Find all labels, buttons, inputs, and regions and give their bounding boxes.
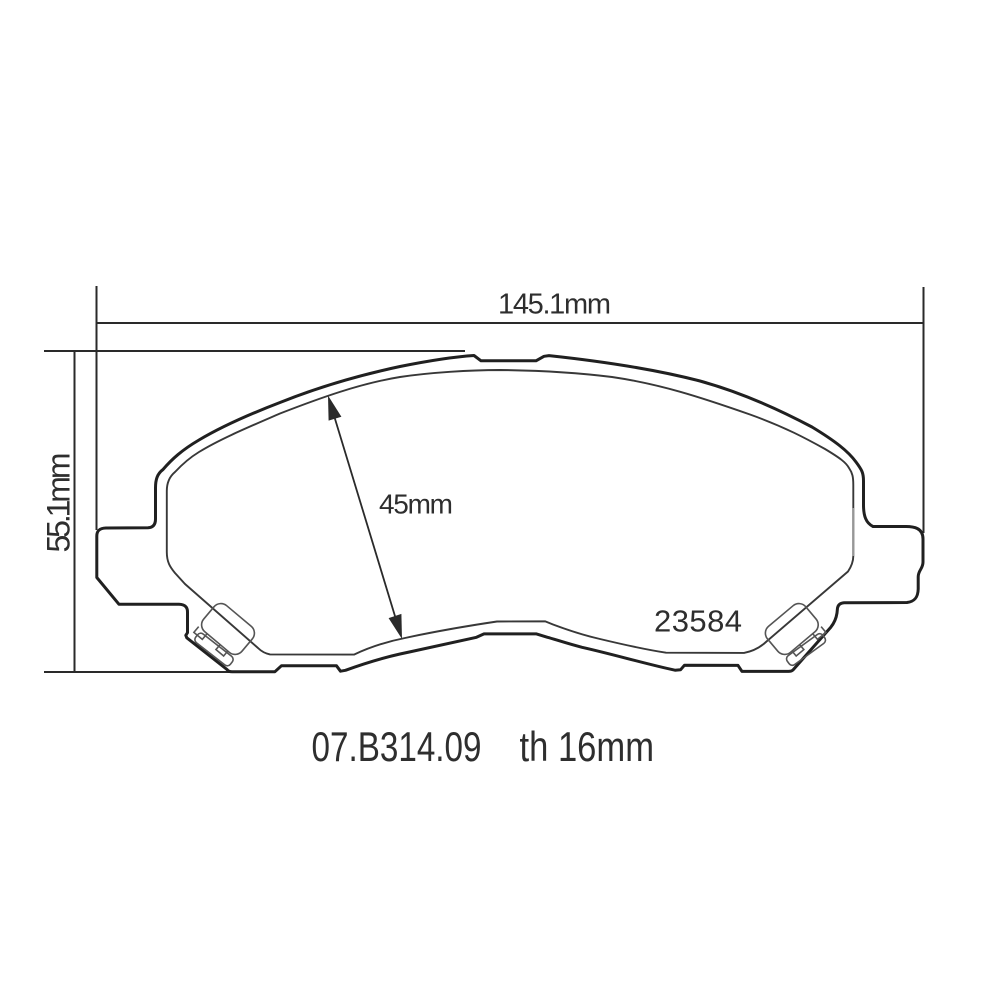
svg-text:th 16mm: th 16mm [520,723,655,770]
svg-text:23584: 23584 [654,604,742,639]
svg-text:145.1mm: 145.1mm [498,289,611,321]
svg-text:07.B314.09: 07.B314.09 [312,723,482,770]
svg-text:55.1mm: 55.1mm [41,453,77,553]
svg-text:45mm: 45mm [379,489,453,520]
